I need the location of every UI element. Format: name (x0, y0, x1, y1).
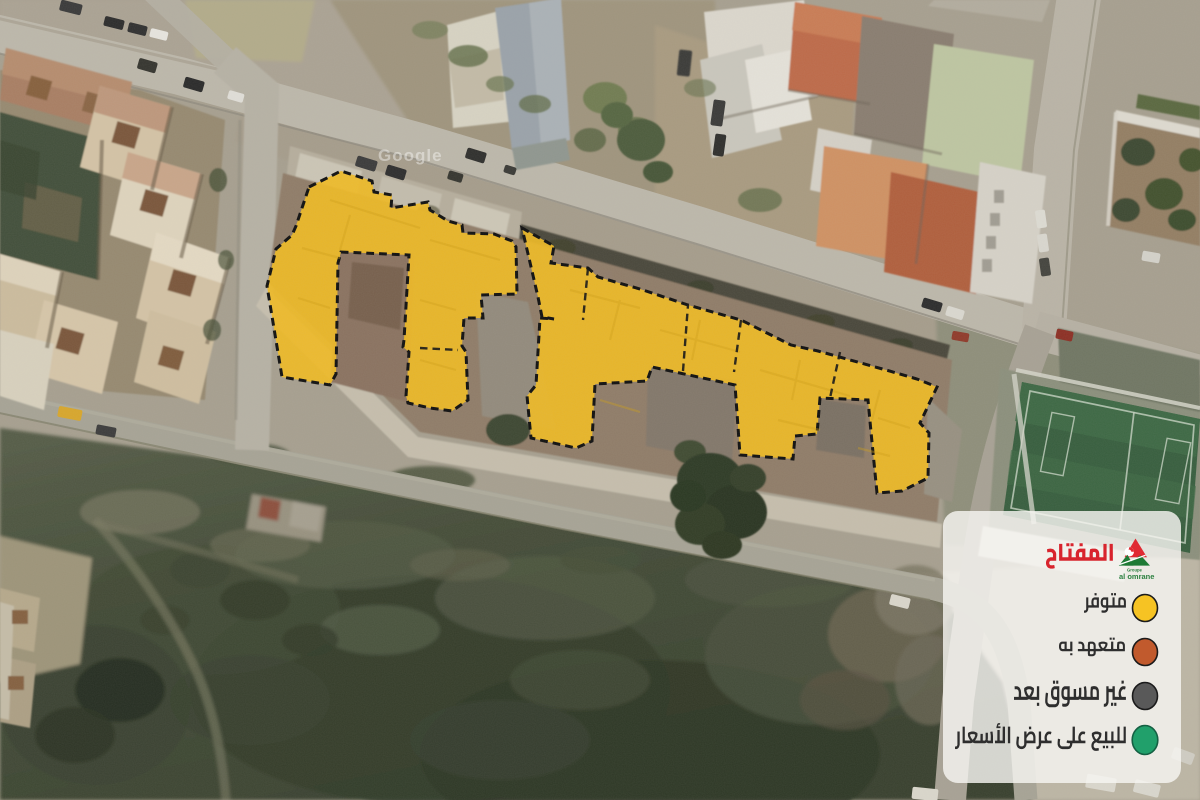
svg-text:Groupe: Groupe (1127, 568, 1143, 573)
svg-text:al omrane: al omrane (1119, 572, 1154, 581)
